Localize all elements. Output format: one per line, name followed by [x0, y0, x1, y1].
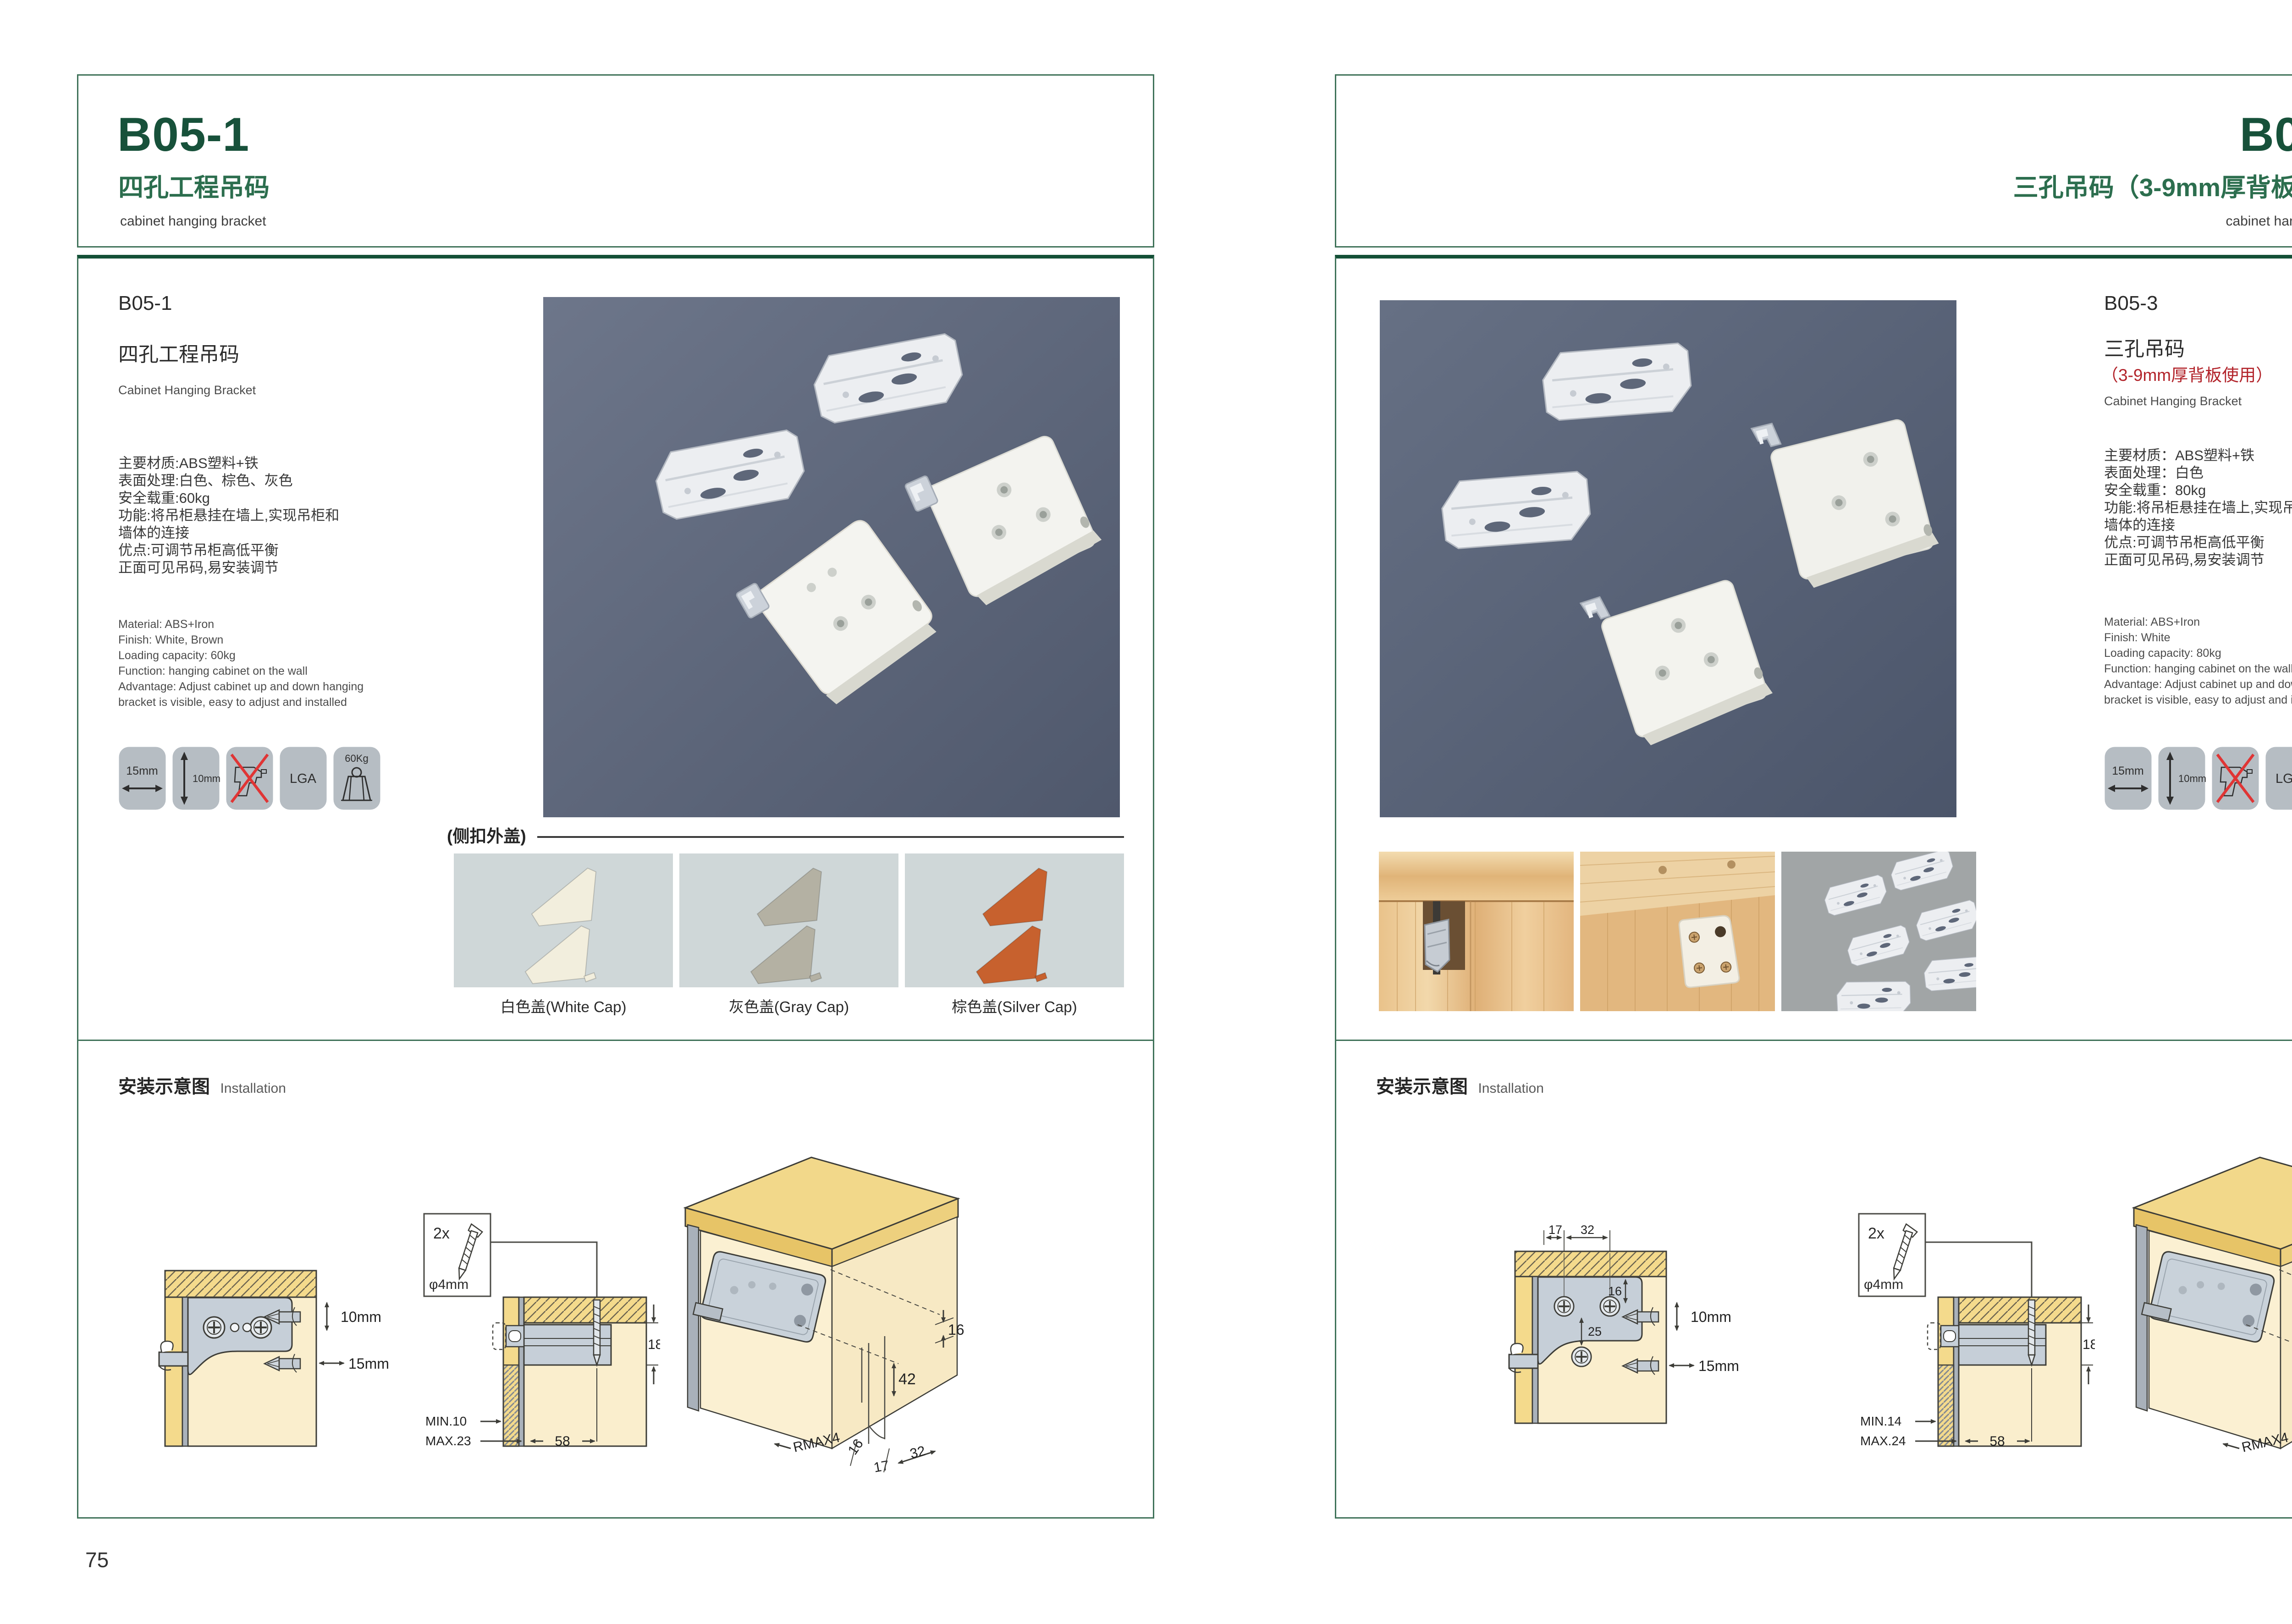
svg-text:MAX.24: MAX.24	[1860, 1434, 1906, 1448]
svg-text:10mm: 10mm	[1691, 1309, 1731, 1325]
product-title-zh: 三孔吊码	[2104, 339, 2185, 359]
product-specs-zh: 主要材质：ABS塑料+铁 表面处理：白色 安全载重：80kg 功能:将吊柜悬挂在…	[2104, 447, 2292, 569]
right-header-code: B05-3	[1793, 111, 2292, 159]
spec-line: Loading capacity: 80kg	[2104, 645, 2292, 661]
feature-icons-row: 15mm 10mm LGA	[2104, 746, 2292, 810]
svg-text:φ4mm: φ4mm	[1864, 1277, 1903, 1292]
install-diagram-section: 17 32 16 25 10mm 15mm	[1508, 1224, 1756, 1462]
spec-line: Function: hanging cabinet on the wall	[2104, 661, 2292, 677]
catalog-spread: B05-1 四孔工程吊码 cabinet hanging bracket B05…	[0, 0, 2292, 1624]
application-photo-clip	[1379, 852, 1574, 1011]
product-photo	[1380, 300, 1956, 817]
application-photo-rails	[1781, 852, 1976, 1011]
spec-line: 表面处理：白色	[2104, 464, 2292, 482]
spec-line: Material: ABS+Iron	[2104, 614, 2292, 630]
svg-text:17: 17	[1548, 1224, 1562, 1237]
spec-line: bracket is visible, easy to adjust and i…	[2104, 692, 2292, 708]
svg-text:MIN.14: MIN.14	[1860, 1414, 1901, 1428]
svg-text:58: 58	[1989, 1434, 2005, 1449]
application-photo-bracket	[1580, 852, 1775, 1011]
installation-title-en: Installation	[1478, 1081, 1543, 1096]
svg-text:15mm: 15mm	[1698, 1358, 1739, 1374]
install-diagram-screw: 2x φ4mm	[1834, 1210, 2095, 1471]
svg-text:15mm: 15mm	[2112, 765, 2143, 777]
right-header-title-en: cabinet hanging bracket	[1793, 215, 2292, 228]
spec-line: Finish: White	[2104, 630, 2292, 645]
product-title-note: （3-9mm厚背板使用）	[2101, 367, 2273, 384]
product-code: B05-3	[2104, 293, 2158, 314]
no-drill-icon	[2211, 746, 2259, 810]
svg-text:10mm: 10mm	[2178, 773, 2206, 784]
spec-line: Advantage: Adjust cabinet up and down ha…	[2104, 677, 2292, 692]
installation-title: 安装示意图 Installation	[1376, 1072, 1544, 1098]
lga-cert-icon: LGA	[2265, 746, 2292, 810]
spec-line: 安全载重：80kg	[2104, 482, 2292, 499]
svg-text:25: 25	[1588, 1325, 1602, 1338]
height-arrow-icon: 10mm	[2158, 746, 2206, 810]
product-title-en: Cabinet Hanging Bracket	[2104, 395, 2242, 407]
svg-text:2x: 2x	[1868, 1225, 1884, 1242]
spec-line: 优点:可调节吊柜高低平衡	[2104, 534, 2292, 551]
installation-title-zh: 安装示意图	[1376, 1072, 1468, 1098]
spec-line: 墙体的连接	[2104, 517, 2292, 534]
spec-line: 正面可见吊码,易安装调节	[2104, 551, 2292, 569]
spec-line: 主要材质：ABS塑料+铁	[2104, 447, 2292, 464]
product-specs-en: Material: ABS+Iron Finish: White Loading…	[2104, 614, 2292, 708]
svg-text:LGA: LGA	[2275, 771, 2292, 786]
page-right: B05-3 三孔吊码（3-9mm厚背板使用） cabinet hanging b…	[0, 0, 2292, 1624]
right-section-divider	[1336, 1040, 2292, 1041]
right-header-title-zh: 三孔吊码（3-9mm厚背板使用）	[1793, 175, 2292, 200]
svg-text:32: 32	[1581, 1224, 1594, 1237]
svg-text:18: 18	[2083, 1337, 2095, 1352]
spec-line: 功能:将吊柜悬挂在墙上,实现吊柜和	[2104, 499, 2292, 517]
width-arrow-icon: 15mm	[2104, 746, 2152, 810]
install-diagram-3d: 16 42 RMAX4 18 17 32	[2109, 1128, 2292, 1481]
svg-text:16: 16	[1608, 1284, 1622, 1298]
